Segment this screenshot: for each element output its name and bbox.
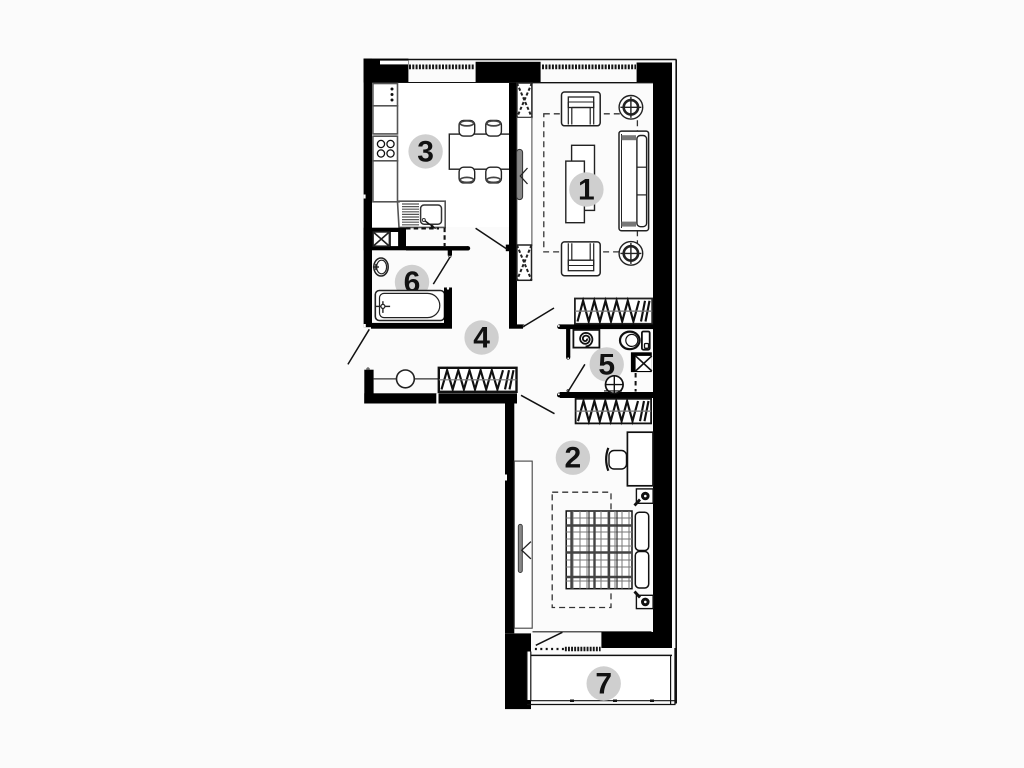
svg-text:7: 7 bbox=[595, 668, 612, 701]
svg-text:1: 1 bbox=[578, 174, 595, 207]
svg-text:4: 4 bbox=[473, 322, 490, 355]
svg-text:3: 3 bbox=[417, 135, 434, 168]
svg-text:2: 2 bbox=[565, 442, 582, 475]
